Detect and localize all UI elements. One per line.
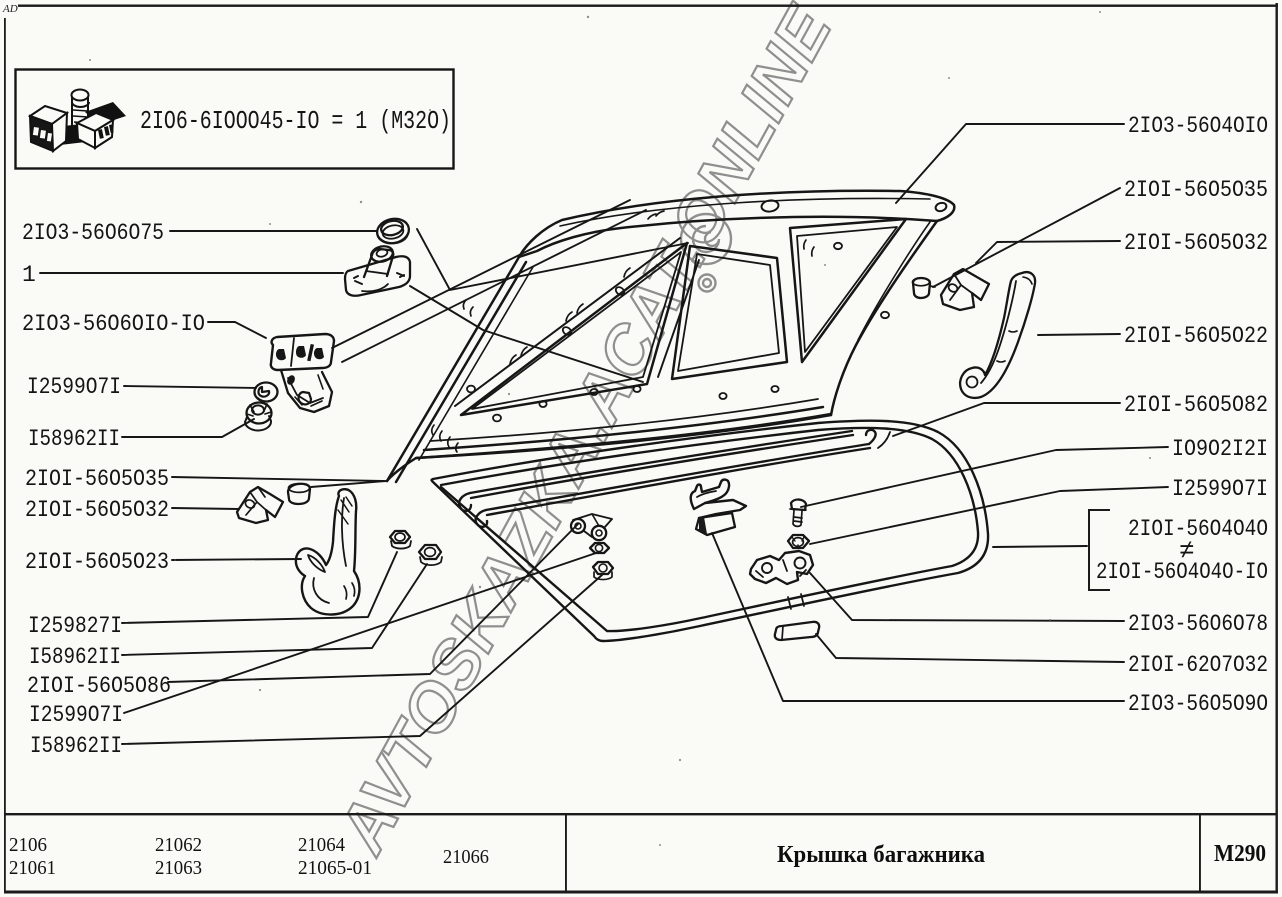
svg-text:2IO3-56O5O9O: 2IO3-56O5O9O: [1128, 691, 1268, 717]
svg-text:2IOI-56O5O35: 2IOI-56O5O35: [1124, 177, 1268, 203]
svg-text:21066: 21066: [443, 846, 489, 868]
svg-text:2IOI-56O4O4O: 2IOI-56O4O4O: [1128, 516, 1268, 542]
svg-text:21062: 21062: [155, 834, 202, 856]
svg-text:I2599O7I: I2599O7I: [27, 374, 121, 400]
svg-text:2IOI-56O5O32: 2IOI-56O5O32: [25, 497, 169, 523]
svg-text:21061: 21061: [9, 857, 56, 879]
svg-text:I2599O7I: I2599O7I: [29, 702, 123, 728]
svg-text:I58962II: I58962II: [28, 426, 120, 452]
svg-text:I58962II: I58962II: [30, 733, 122, 759]
svg-text:2IOI-56O4O4O-IO: 2IOI-56O4O4O-IO: [1096, 559, 1268, 585]
svg-text:2IOI-56O5O32: 2IOI-56O5O32: [1124, 230, 1268, 256]
svg-text:2IOI-56O5O86: 2IOI-56O5O86: [27, 673, 171, 699]
svg-text:2IO6-6IOOO45-IO = 1 (М32O): 2IO6-6IOOO45-IO = 1 (М32O): [140, 106, 451, 136]
svg-text:2IOI-56O5O82: 2IOI-56O5O82: [1124, 392, 1268, 418]
svg-text:21065-01: 21065-01: [298, 857, 372, 879]
svg-text:2IO3-56O4OIO: 2IO3-56O4OIO: [1128, 113, 1268, 139]
svg-text:М290: М290: [1214, 841, 1266, 867]
svg-text:21064: 21064: [298, 834, 345, 856]
svg-text:Крышка багажника: Крышка багажника: [777, 842, 985, 868]
svg-text:2IO3-56O6OIO-IO: 2IO3-56O6OIO-IO: [22, 311, 205, 337]
svg-text:2IOI-56O5O23: 2IOI-56O5O23: [25, 549, 169, 575]
svg-text:2106: 2106: [9, 834, 47, 856]
svg-text:2IOI-62O7O32: 2IOI-62O7O32: [1128, 652, 1268, 678]
svg-text:AD: AD: [2, 3, 18, 15]
svg-text:2IOI-56O5O35: 2IOI-56O5O35: [25, 466, 169, 492]
svg-text:I2599O7I: I2599O7I: [1172, 476, 1268, 502]
svg-text:1: 1: [22, 262, 36, 288]
svg-text:I259827I: I259827I: [28, 613, 122, 639]
svg-text:2IOI-56O5O22: 2IOI-56O5O22: [1124, 323, 1268, 349]
svg-text:2IO3-56O6O75: 2IO3-56O6O75: [22, 220, 164, 246]
svg-text:2IO3-56O6O78: 2IO3-56O6O78: [1128, 611, 1268, 637]
svg-text:21063: 21063: [155, 857, 202, 879]
svg-text:I58962II: I58962II: [29, 644, 121, 670]
svg-text:IO9O2I2I: IO9O2I2I: [1172, 436, 1268, 462]
